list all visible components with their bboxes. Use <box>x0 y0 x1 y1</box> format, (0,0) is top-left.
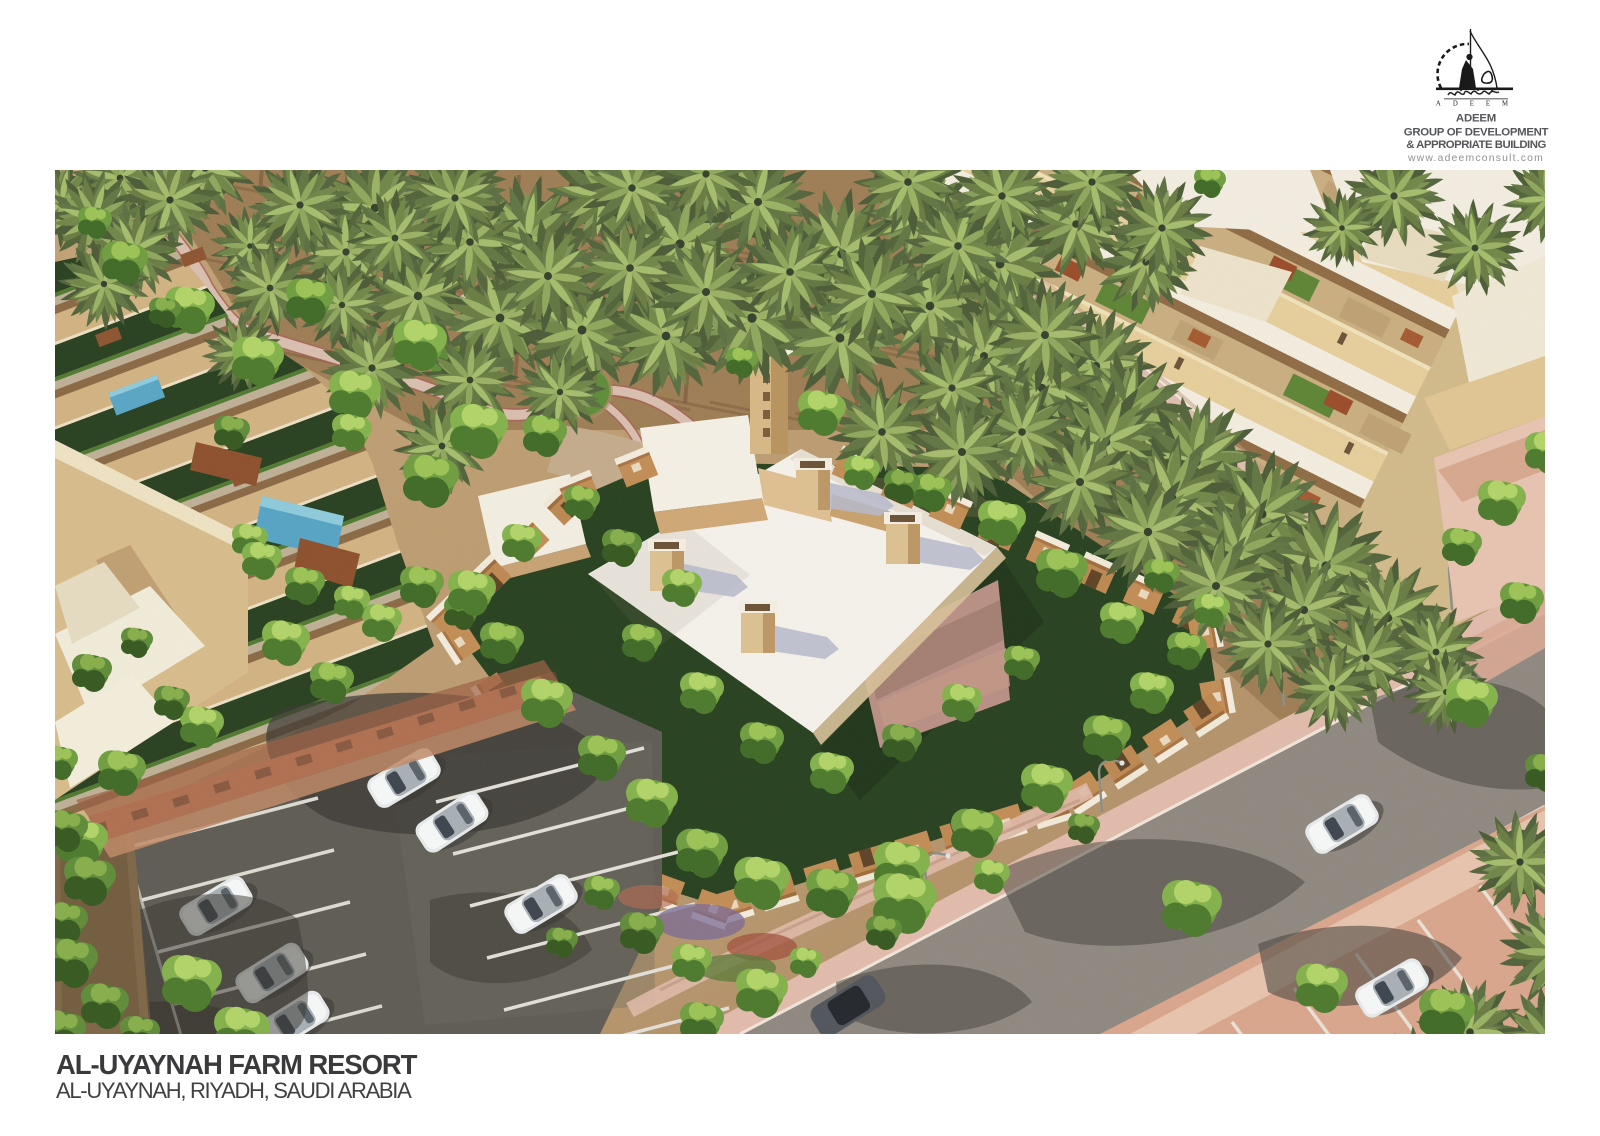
svg-text:AL-UYAYNAH FARM RESORT: AL-UYAYNAH FARM RESORT <box>56 1049 418 1080</box>
svg-text:AL-UYAYNAH, RIYADH, SAUDI ARAB: AL-UYAYNAH, RIYADH, SAUDI ARABIA <box>56 1078 412 1103</box>
svg-text:ADEEM: ADEEM <box>1436 101 1520 108</box>
svg-text:GROUP OF DEVELOPMENT: GROUP OF DEVELOPMENT <box>1404 126 1549 138</box>
svg-text:www.adeemconsult.com: www.adeemconsult.com <box>1407 153 1544 164</box>
svg-text:& APPROPRIATE BUILDING: & APPROPRIATE BUILDING <box>1406 139 1546 151</box>
svg-text:ADEEM: ADEEM <box>1456 113 1496 125</box>
